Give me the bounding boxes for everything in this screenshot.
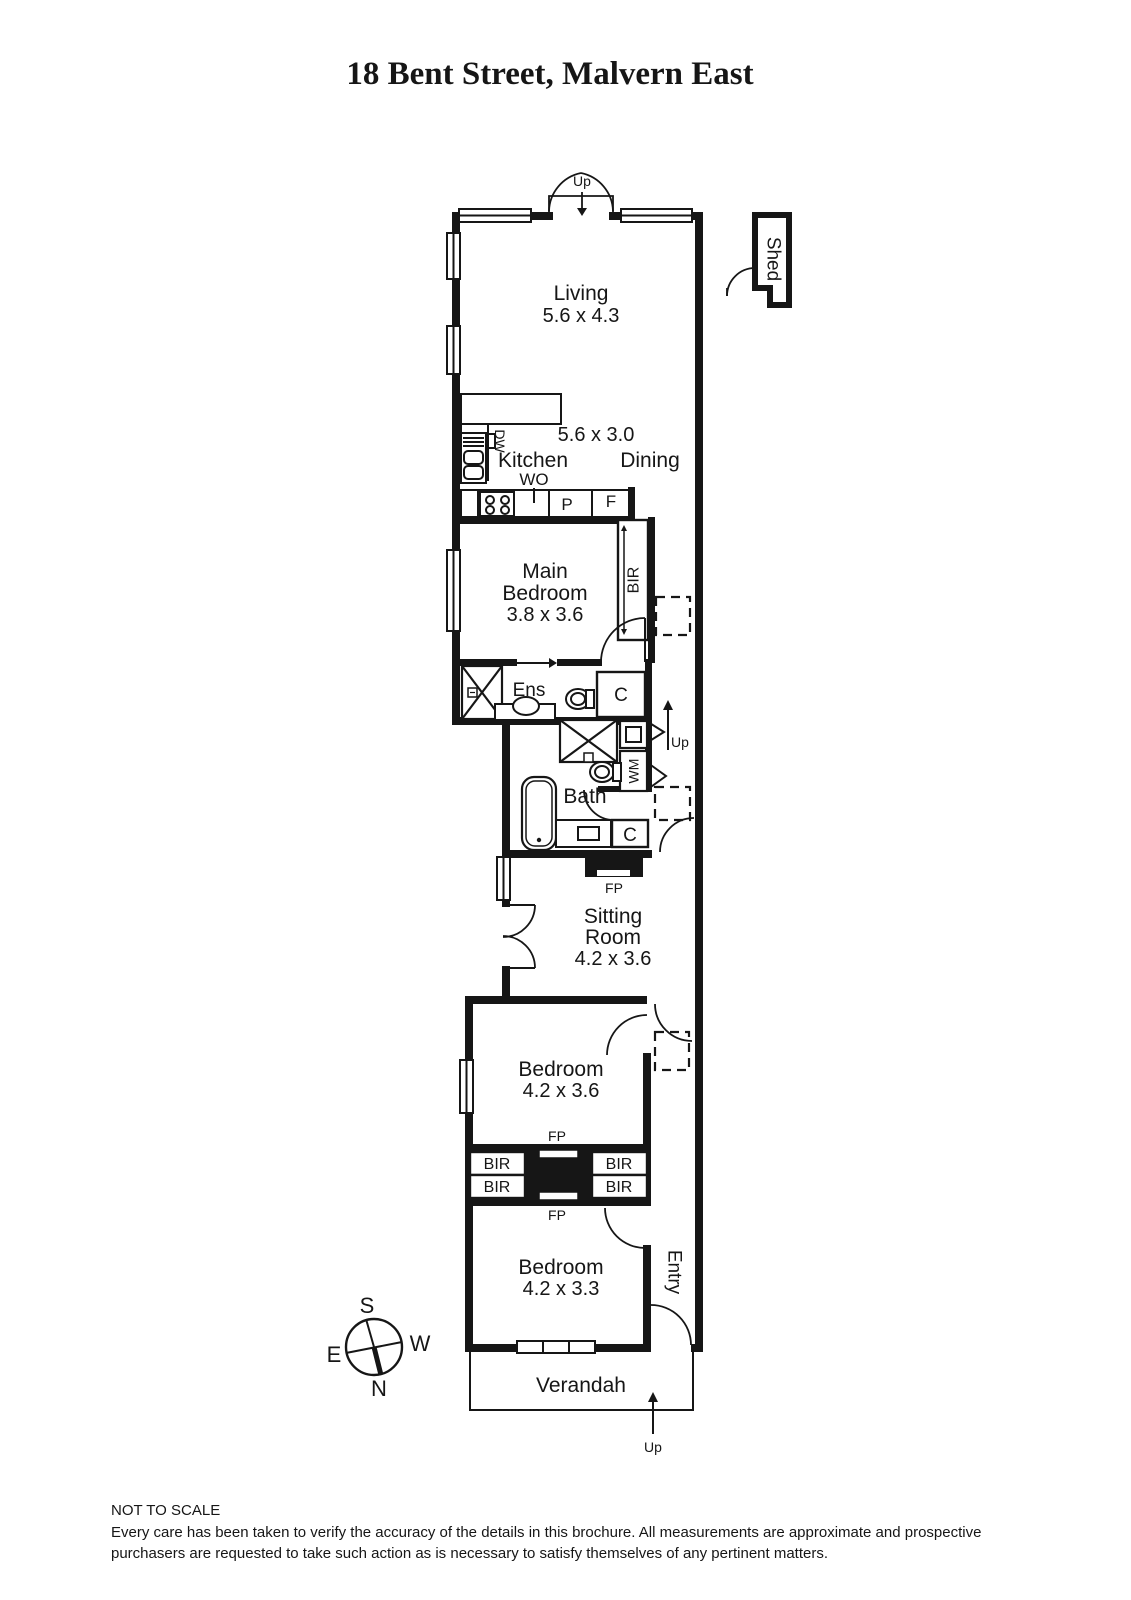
pantry-label: P xyxy=(561,495,572,514)
bir-label-4: BIR xyxy=(606,1179,633,1196)
bath-shower-icon xyxy=(560,720,617,762)
bedroom-3-door-arc xyxy=(605,1208,645,1248)
page-title: 18 Bent Street, Malvern East xyxy=(0,56,1100,93)
ensuite-vanity-icon xyxy=(495,697,555,720)
living-dims: 5.6 x 4.3 xyxy=(543,305,620,327)
bir-label-main: BIR xyxy=(626,567,643,594)
compass-icon xyxy=(346,1319,402,1375)
bedroom-3-dims: 4.2 x 3.3 xyxy=(523,1278,600,1300)
bath-vanity-icon xyxy=(556,820,611,847)
bedroom-2-door-arc xyxy=(607,1015,647,1055)
fridge-label: F xyxy=(606,492,616,511)
main-bedroom-dims: 3.8 x 3.6 xyxy=(507,604,584,626)
shed-door-arc xyxy=(727,268,755,296)
laundry-trough-icon xyxy=(620,721,647,748)
bedroom-3-label: Bedroom xyxy=(518,1256,603,1279)
kitchen-label: Kitchen xyxy=(498,449,568,472)
main-bedroom-label-1: Main xyxy=(522,560,568,583)
floorplan-page: 18 Bent Street, Malvern East xyxy=(0,0,1131,1600)
cooktop-icon xyxy=(480,492,514,516)
ensuite-toilet-icon xyxy=(566,689,594,709)
hall-door-arc xyxy=(660,818,694,852)
bedroom-2-dims: 4.2 x 3.6 xyxy=(523,1080,600,1102)
front-door-arc xyxy=(651,1305,691,1345)
cupboard-label-2: C xyxy=(623,825,637,846)
compass-south-label: S xyxy=(360,1293,375,1318)
verandah-up-label: Up xyxy=(644,1439,662,1455)
disclaimer-block: NOT TO SCALE Every care has been taken t… xyxy=(111,1500,1056,1564)
double-fireplace xyxy=(525,1150,592,1200)
bathtub-icon xyxy=(522,777,556,850)
main-bedroom-label-2: Bedroom xyxy=(502,582,587,605)
bir-label-3: BIR xyxy=(606,1156,633,1173)
disclaimer-text: Every care has been taken to verify the … xyxy=(111,1522,1056,1564)
fireplace-label-bottom: FP xyxy=(548,1207,566,1223)
bath-toilet-icon xyxy=(590,762,621,782)
wall-oven-label: WO xyxy=(519,470,548,489)
not-to-scale-label: NOT TO SCALE xyxy=(111,1500,1056,1521)
slide-door-arrow xyxy=(515,658,557,668)
sink-icon xyxy=(461,433,486,483)
verandah-label: Verandah xyxy=(536,1374,626,1397)
sitting-room-dims: 4.2 x 3.6 xyxy=(575,948,652,970)
stairs-up-label: Up xyxy=(671,734,689,750)
kitchen-dining-dims: 5.6 x 3.0 xyxy=(558,424,635,446)
hall-door-arc-2 xyxy=(655,1004,692,1041)
sitting-fireplace xyxy=(585,858,643,877)
bedroom-2-label: Bedroom xyxy=(518,1058,603,1081)
fireplace-label-sitting: FP xyxy=(605,880,623,896)
shed-label: Shed xyxy=(763,237,784,281)
dining-label: Dining xyxy=(620,449,680,472)
compass-east-label: E xyxy=(327,1342,342,1367)
washing-machine-label: WM xyxy=(626,759,642,784)
sitting-french-doors xyxy=(503,905,535,968)
compass-north-label: N xyxy=(371,1376,387,1401)
entry-label: Entry xyxy=(664,1250,685,1295)
down-arrow-icon xyxy=(577,208,587,216)
dashed-openings xyxy=(655,597,690,1070)
sitting-room-label-1: Sitting xyxy=(584,905,642,928)
living-label: Living xyxy=(554,282,609,305)
compass-west-label: W xyxy=(410,1331,431,1356)
living-up-label: Up xyxy=(573,173,591,189)
floorplan-drawing: Up DW 5.6 x 3.0 Kitchen WO xyxy=(280,150,820,1480)
verandah-up-arrow xyxy=(648,1392,658,1434)
fireplace-label-top: FP xyxy=(548,1128,566,1144)
bir-label-1: BIR xyxy=(484,1156,511,1173)
cupboard-label-1: C xyxy=(614,685,628,706)
bir-label-2: BIR xyxy=(484,1179,511,1196)
sitting-room-label-2: Room xyxy=(585,926,641,949)
